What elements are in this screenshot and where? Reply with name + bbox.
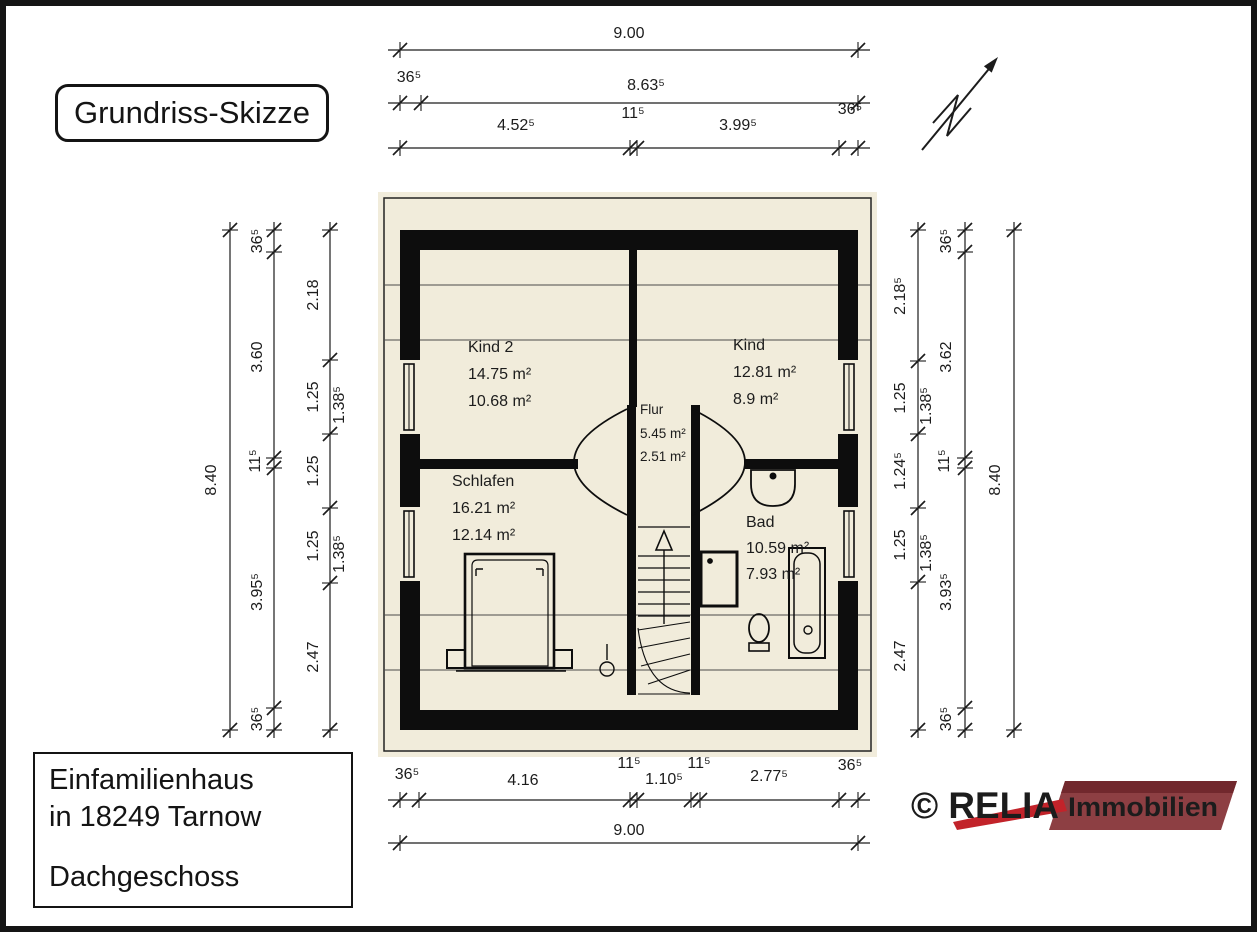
dim-label: 1.38⁵ [918, 387, 935, 425]
dim-label: 3.99⁵ [719, 117, 757, 134]
dim-label: 1.38⁵ [331, 386, 348, 424]
dim-label: 8.40 [203, 464, 220, 495]
room-area-reduced: 12.14 m² [452, 527, 516, 544]
info-line-building: Einfamilienhaus [49, 762, 351, 799]
room-name: Bad [746, 514, 774, 531]
dim-label: 8.40 [987, 464, 1004, 495]
dim-label: 1.25 [305, 530, 322, 561]
page-title: Grundriss-Skizze [74, 95, 310, 131]
logo-brand-text: © RELIA [911, 785, 1059, 826]
room-area: 5.45 m² [640, 426, 686, 441]
window-left-lower [398, 507, 422, 581]
room-area-reduced: 10.68 m² [468, 393, 532, 410]
dim-label: 4.52⁵ [497, 117, 535, 134]
dim-label: 11⁵ [247, 449, 264, 472]
info-spacer [49, 835, 351, 859]
dim-label: 36⁵ [249, 707, 266, 731]
dim-label: 1.38⁵ [918, 534, 935, 572]
room-area: 12.81 m² [733, 364, 797, 381]
dim-label: 1.25 [305, 455, 322, 486]
room-area-reduced: 8.9 m² [733, 391, 779, 408]
window-right-lower [836, 507, 860, 581]
dimension-labels-right: 8.40 36⁵ 3.62 11⁵ 3.93⁵ 36⁵ 2.18⁵ 1.25 1… [892, 229, 1004, 731]
dim-label: 36⁵ [397, 69, 421, 86]
dim-label: 1.24⁵ [892, 452, 909, 490]
info-box: Einfamilienhaus in 18249 Tarnow Dachgesc… [33, 752, 353, 908]
dimension-labels-top: 9.00 36⁵ 8.63⁵ 4.52⁵ 11⁵ 3.99⁵ 36⁵ [397, 25, 862, 134]
dim-label: 3.95⁵ [249, 573, 266, 611]
dim-label: 36⁵ [938, 707, 955, 731]
dim-label: 11⁵ [617, 755, 640, 772]
dim-label: 2.18⁵ [892, 277, 909, 315]
dimension-labels-bottom: 36⁵ 4.16 11⁵ 1.10⁵ 11⁵ 2.77⁵ 36⁵ 9.00 [395, 755, 862, 839]
window-right-upper [836, 360, 860, 434]
room-area: 14.75 m² [468, 366, 532, 383]
room-area: 10.59 m² [746, 540, 810, 557]
room-label-schlafen: Schlafen 16.21 m² 12.14 m² [452, 473, 516, 544]
room-name: Flur [640, 402, 664, 417]
room-name: Kind 2 [468, 339, 513, 356]
dim-label: 2.77⁵ [750, 768, 788, 785]
title-box: Grundriss-Skizze [55, 84, 329, 142]
dim-label: 36⁵ [249, 229, 266, 253]
dim-label: 2.47 [305, 641, 322, 672]
dim-label: 9.00 [613, 822, 644, 839]
dim-label: 3.93⁵ [938, 573, 955, 611]
relia-logo: © RELIA Immobilien [903, 768, 1251, 840]
dim-label: 1.25 [305, 381, 322, 412]
dim-label: 36⁵ [838, 101, 862, 118]
room-name: Schlafen [452, 473, 514, 490]
logo-suffix-text: Immobilien [1068, 792, 1218, 822]
dim-label: 11⁵ [687, 755, 710, 772]
dimension-labels-left: 8.40 36⁵ 3.60 11⁵ 3.95⁵ 36⁵ 2.18 1.25 1.… [203, 229, 348, 731]
floor-plan-scan-page: Kind 2 14.75 m² 10.68 m² Kind 12.81 m² 8… [0, 0, 1257, 932]
room-area: 16.21 m² [452, 500, 516, 517]
room-name: Kind [733, 337, 765, 354]
dim-label: 9.00 [613, 25, 644, 42]
dim-label: 1.38⁵ [331, 535, 348, 573]
dim-label: 2.47 [892, 640, 909, 671]
dim-label: 8.63⁵ [627, 77, 665, 94]
window-left-upper [398, 360, 422, 434]
dim-label: 36⁵ [395, 766, 419, 783]
dim-label: 3.62 [938, 341, 955, 372]
dim-label: 4.16 [507, 772, 538, 789]
dim-label: 1.25 [892, 382, 909, 413]
dim-label: 3.60 [249, 341, 266, 372]
dim-label: 36⁵ [838, 757, 862, 774]
dim-label: 1.25 [892, 529, 909, 560]
room-area-reduced: 7.93 m² [746, 566, 801, 583]
north-arrow-icon [922, 57, 998, 150]
dim-label: 11⁵ [936, 449, 953, 472]
dim-label: 2.18 [305, 279, 322, 310]
dim-label: 36⁵ [938, 229, 955, 253]
info-line-floor: Dachgeschoss [49, 859, 351, 896]
info-line-address: in 18249 Tarnow [49, 799, 351, 836]
room-area-reduced: 2.51 m² [640, 449, 686, 464]
dim-label: 11⁵ [621, 105, 644, 122]
dim-label: 1.10⁵ [645, 771, 683, 788]
